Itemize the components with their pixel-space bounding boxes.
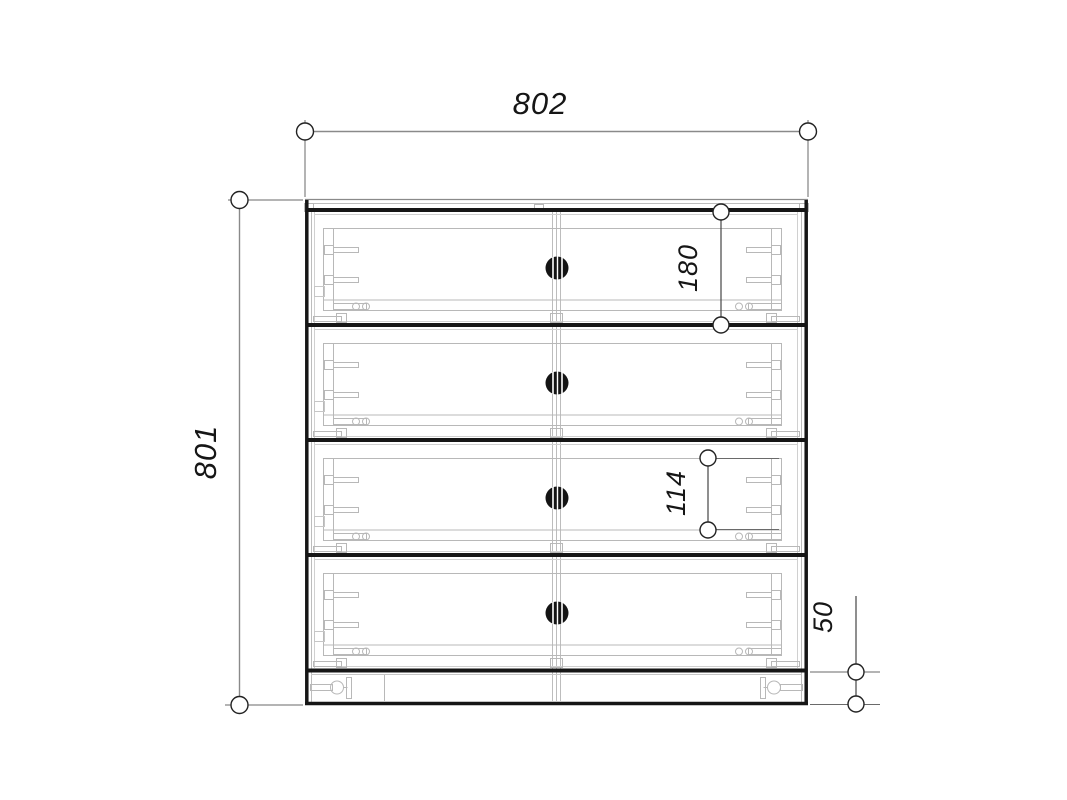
dimension-plinth-height-label: 50 (808, 601, 838, 633)
dimension-drawer-box-height-label: 114 (661, 470, 691, 516)
dimension-overall-height-label: 801 (188, 425, 223, 480)
center-seam (553, 212, 561, 701)
dimension-drawer-front-height-label: 180 (673, 244, 703, 292)
drawing-canvas: 802 801 180 114 50 (0, 0, 1067, 800)
dimension-plinth-height: 50 (808, 596, 880, 712)
dimension-overall-width-label: 802 (513, 86, 568, 121)
dimension-drawer-front-height: 180 (673, 204, 729, 333)
dimension-overall-width: 802 (297, 86, 817, 197)
dimension-drawer-box-height: 114 (661, 450, 779, 538)
cabinet-front-view (305, 200, 809, 706)
furniture-technical-drawing: 802 801 180 114 50 (0, 0, 1067, 800)
dimension-overall-height: 801 (188, 192, 303, 714)
